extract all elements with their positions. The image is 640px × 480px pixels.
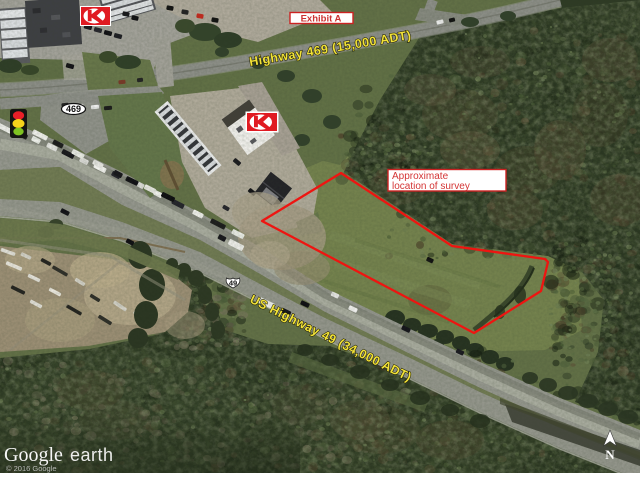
svg-text:© 2016 Google: © 2016 Google <box>6 464 57 473</box>
svg-text:location of survey: location of survey <box>392 181 470 192</box>
svg-text:Google: Google <box>4 444 63 466</box>
svg-text:earth: earth <box>70 445 114 465</box>
svg-text:Exhibit A: Exhibit A <box>301 14 342 25</box>
svg-text:49: 49 <box>229 278 237 287</box>
svg-text:469: 469 <box>66 104 81 114</box>
svg-text:N: N <box>605 447 615 462</box>
